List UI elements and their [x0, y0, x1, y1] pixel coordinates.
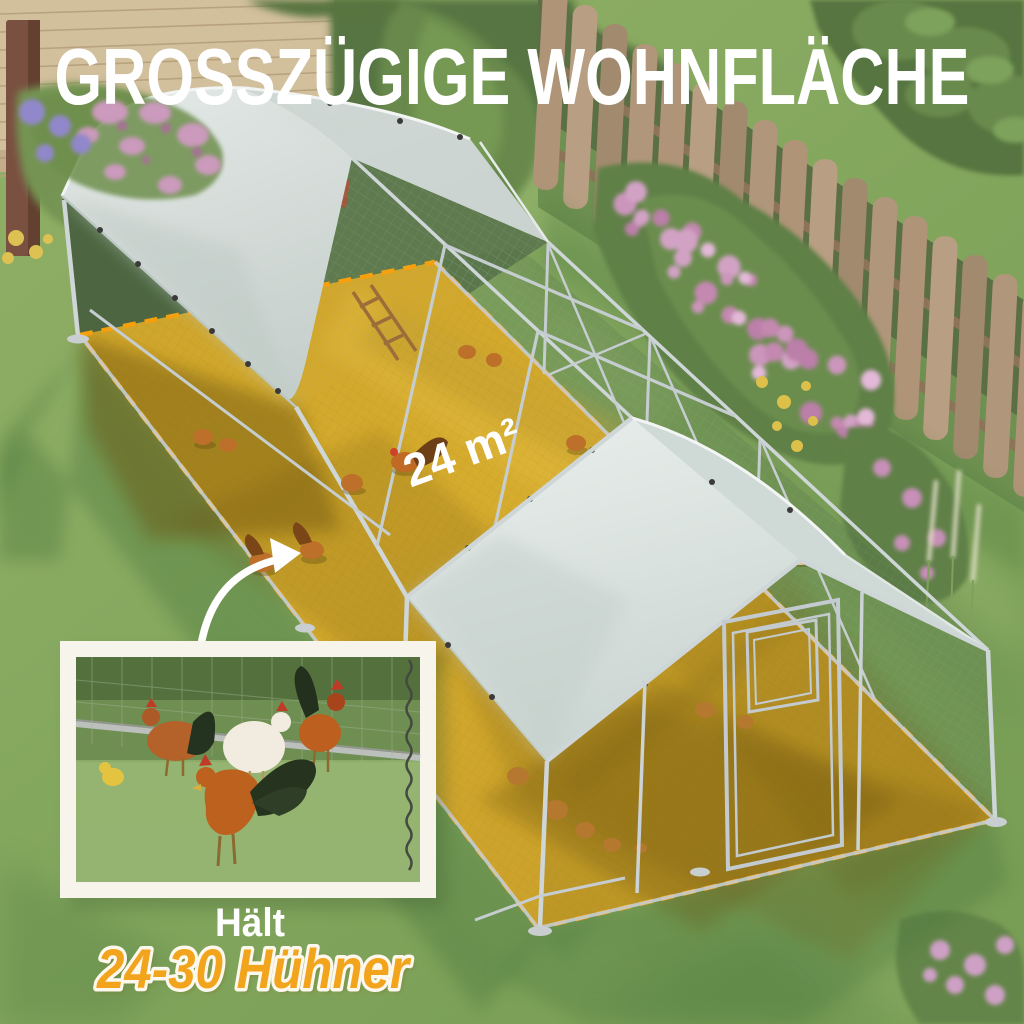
svg-text:24-30 Hühner: 24-30 Hühner — [96, 937, 412, 1000]
svg-text:GROSSZÜGIGE WOHNFLÄCHE: GROSSZÜGIGE WOHNFLÄCHE — [55, 32, 970, 121]
